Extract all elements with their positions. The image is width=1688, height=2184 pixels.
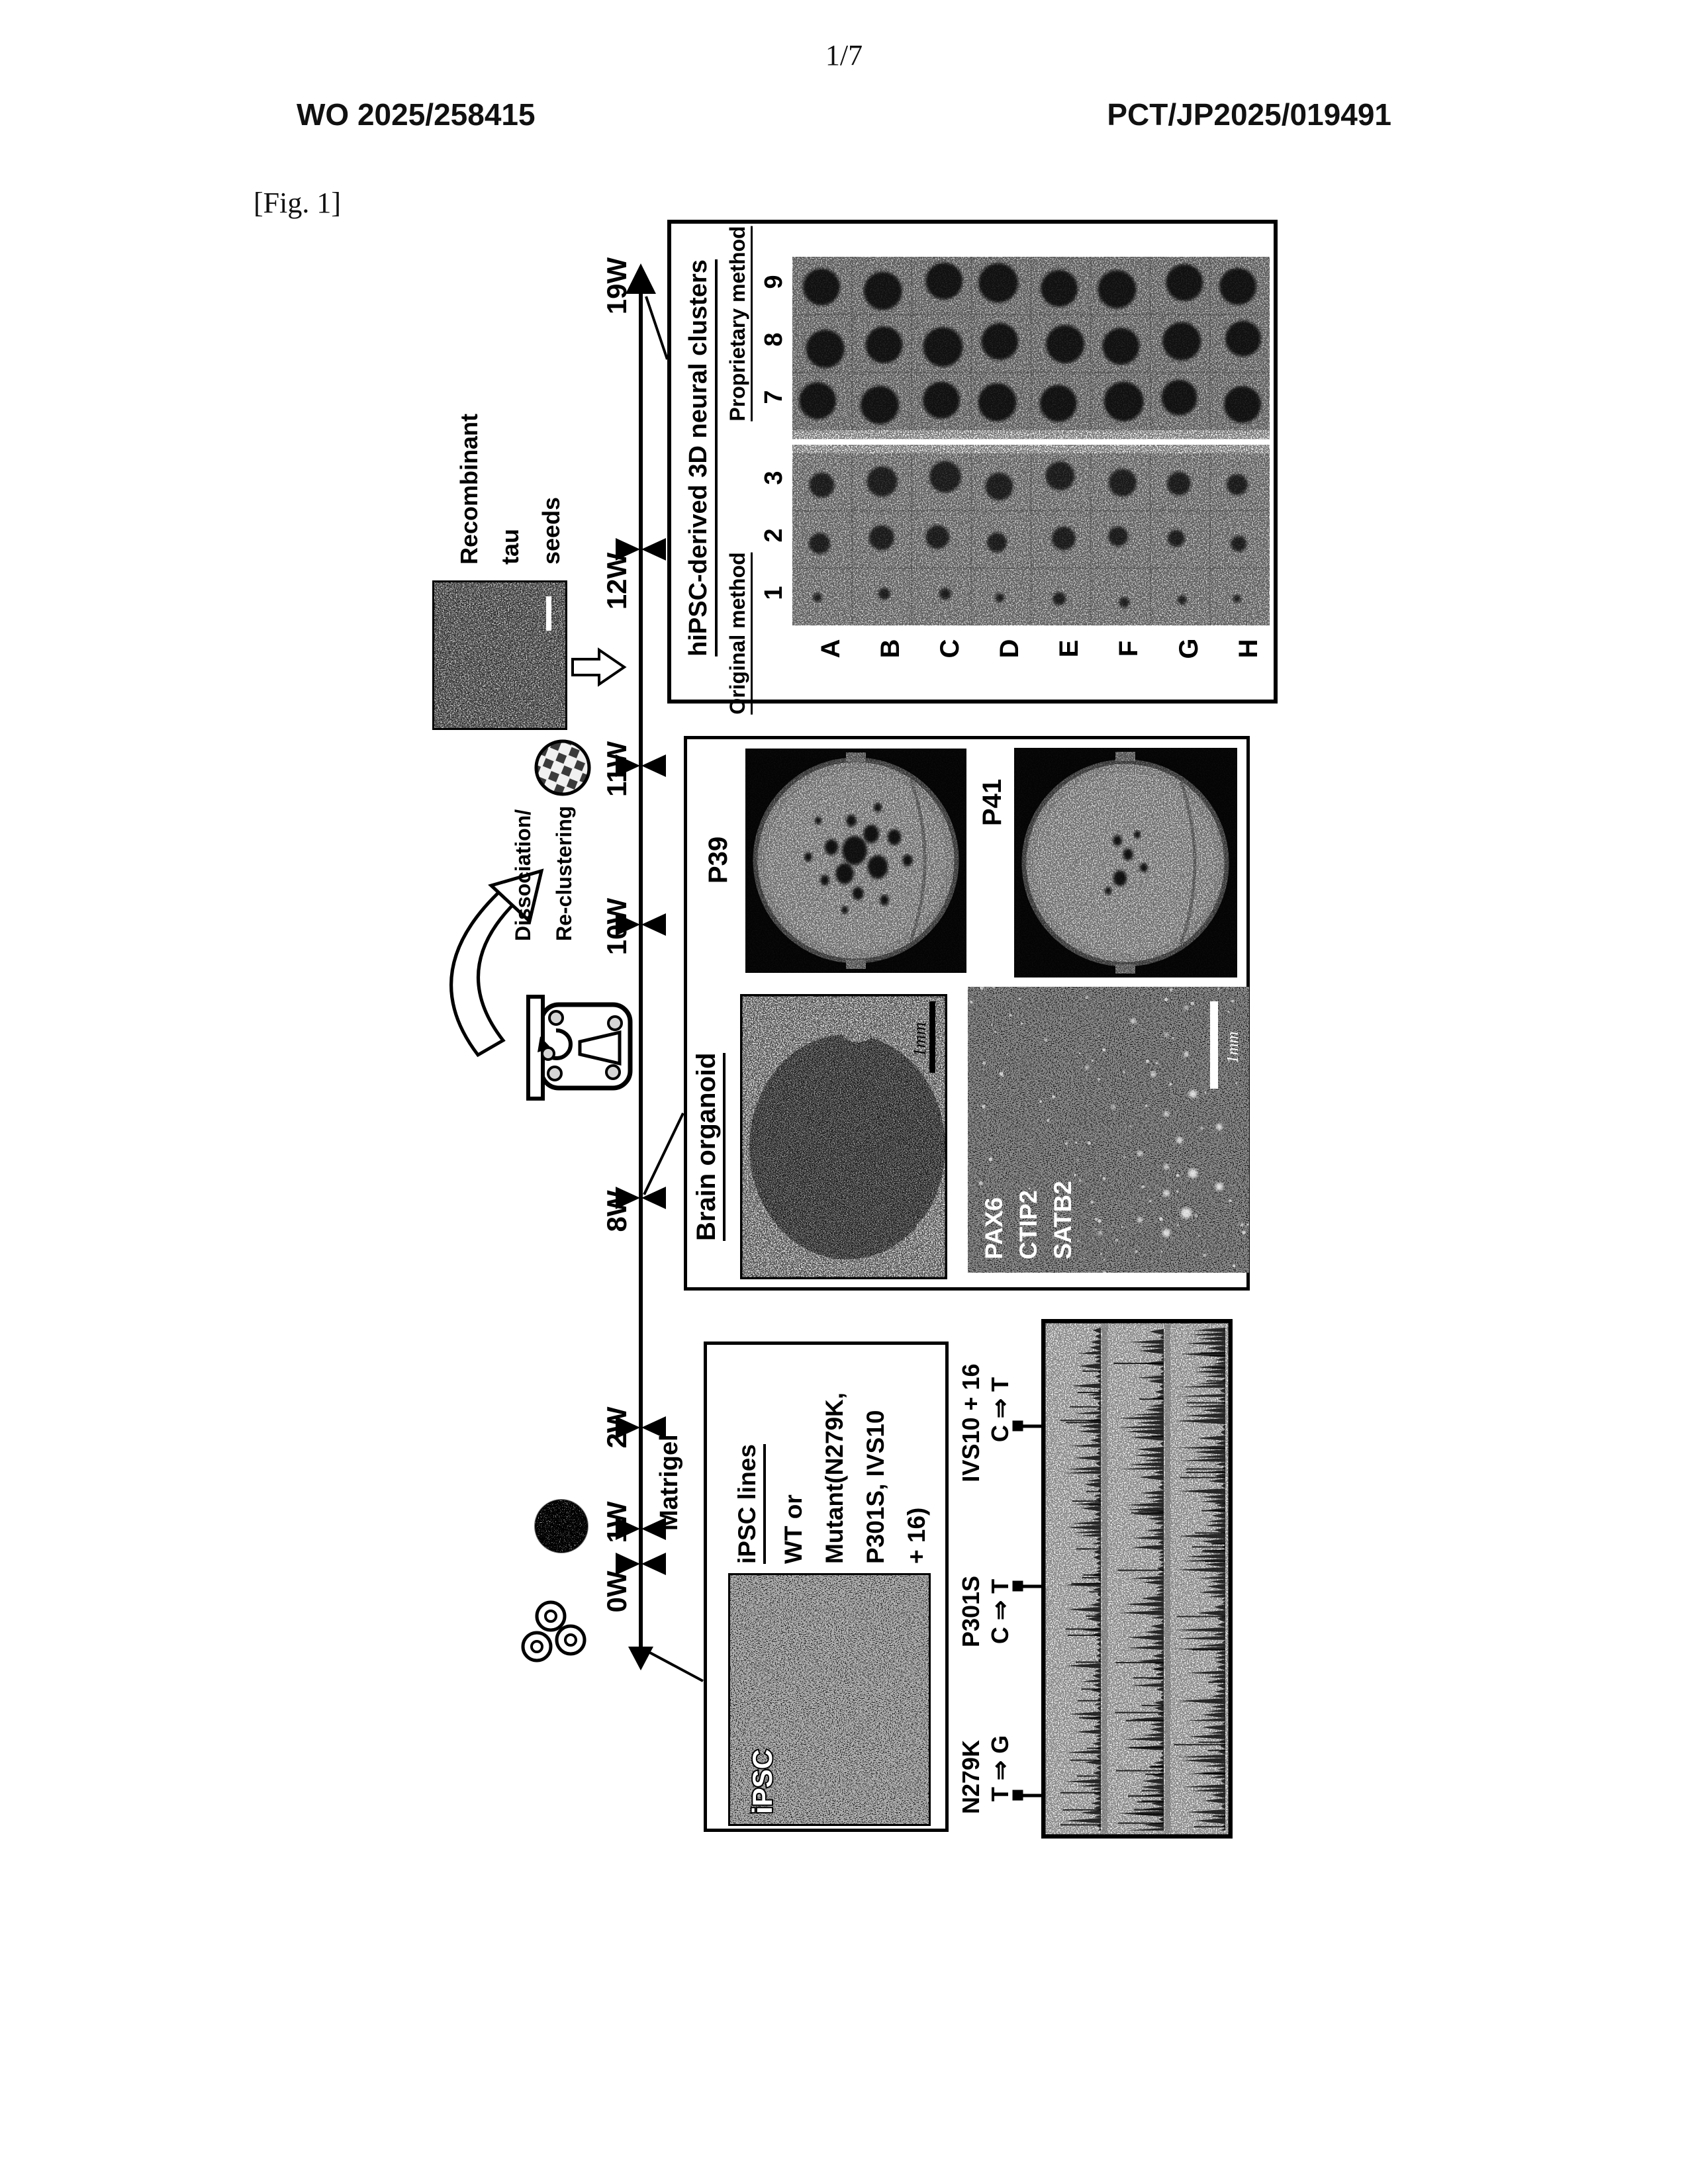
if-label-satb2: SATB2 [1049,1181,1076,1259]
ipsc-lines-box: iPSC iPSC lines WT or Mutant(N279K, P301… [704,1342,949,1832]
immunofluorescence-photo: PAX6 CTIP2 SATB2 1mm [968,987,1249,1273]
neural-clusters-title: hiPSC-derived 3D neural clusters [686,259,718,657]
sequencing-chromatogram [1041,1319,1233,1839]
week-label-10w: 10W [602,898,632,955]
col-label-8: 8 [761,332,788,346]
if-scale-label: 1mm [1224,1031,1242,1064]
if-scale-bar [1210,1001,1218,1089]
bioreactor-icon [528,997,630,1099]
ipsc-lines-title: iPSC lines [735,1444,766,1564]
week-label-8w: 8W [602,1191,632,1232]
ipsc-lines-row-2: Mutant(N279K, [822,1392,848,1564]
tau-seeds-em-image [432,580,567,730]
week-label-12w: 12W [602,553,632,610]
col-label-7: 7 [761,390,788,404]
week-label-1w: 1W [602,1502,632,1543]
page-number: 1/7 [811,38,877,72]
figure-1-canvas: 0W 1W 2W 8W 10W 11W 12W 19W Matrigel Rec… [245,205,1317,1846]
row-label-a: A [817,639,845,659]
tau-seeds-label-2: tau [498,529,523,565]
em-scale-bar [546,596,551,631]
mutation-name-p301s: P301S [959,1576,984,1647]
well-plate-montage [792,257,1270,625]
mutation-change-n279k: T ⇒ G [988,1735,1013,1801]
dissociation-label-2: Re-clustering [553,806,576,941]
organoid-scale-label: 1mm [910,1023,929,1058]
p39-label: P39 [704,837,732,884]
week-label-19w: 19W [602,257,632,314]
week-label-11w: 11W [602,741,632,797]
if-label-pax6: PAX6 [980,1197,1008,1259]
mutation-change-p301s: C ⇒ T [988,1579,1013,1644]
ipsc-lines-row-1: WT or [781,1494,807,1564]
neural-clusters-box: hiPSC-derived 3D neural clusters Origina… [667,220,1278,704]
p41-dish-photo [1014,748,1237,978]
ipsc-photo-label: iPSC [747,1749,778,1814]
row-label-e: E [1055,640,1083,658]
row-label-d: D [996,639,1023,659]
organoid-scale-bar [929,1001,935,1073]
p41-label: P41 [978,779,1006,826]
ipsc-cells-icon [523,1602,585,1661]
col-label-2: 2 [761,528,788,542]
row-label-c: C [936,639,964,659]
timeline-arrow [626,263,656,1670]
tau-seeds-label-1: Recombinant [457,414,482,565]
tau-seeds-label-3: seeds [539,497,564,565]
week-label-2w: 2W [602,1407,632,1449]
mutation-name-n279k: N279K [959,1740,984,1814]
row-label-h: H [1235,639,1262,659]
mutation-change-ivs10: C ⇒ T [988,1377,1013,1442]
ipsc-lines-row-3: P301S, IVS10 [863,1410,889,1564]
if-label-ctip2: CTIP2 [1015,1190,1042,1259]
ipsc-lines-row-4: + 16) [904,1508,930,1564]
col-label-3: 3 [761,471,788,484]
dissociation-label-1: Dissociation/ [512,809,535,941]
organoid-photo: 1mm [740,994,947,1279]
mutation-name-ivs10: IVS10 + 16 [959,1363,984,1482]
embryoid-body-icon [532,1496,592,1555]
row-label-f: F [1115,641,1143,657]
application-number: PCT/JP2025/019491 [1107,97,1391,132]
proprietary-method-label: Proprietary method [727,226,753,421]
week-label-0w: 0W [602,1571,632,1613]
ipsc-photo: iPSC [728,1573,931,1826]
row-label-g: G [1175,638,1203,659]
brain-organoid-title: Brain organoid [692,1053,726,1241]
p39-dish-photo [745,749,966,973]
col-label-9: 9 [761,275,788,289]
neural-cluster-icon [536,741,589,794]
row-label-b: B [876,639,904,659]
patent-page: 1/7 WO 2025/258415 PCT/JP2025/019491 [Fi… [0,0,1688,2184]
brain-organoid-box: Brain organoid P39 P41 1mm PAX6 [684,736,1250,1291]
matrigel-label: Matrigel [657,1434,683,1531]
col-label-1: 1 [761,586,788,600]
mutation-marker-pins [1013,1421,1041,1800]
original-method-label: Original method [727,552,753,714]
tau-seed-addition-arrow [573,650,624,684]
publication-number: WO 2025/258415 [297,97,536,132]
